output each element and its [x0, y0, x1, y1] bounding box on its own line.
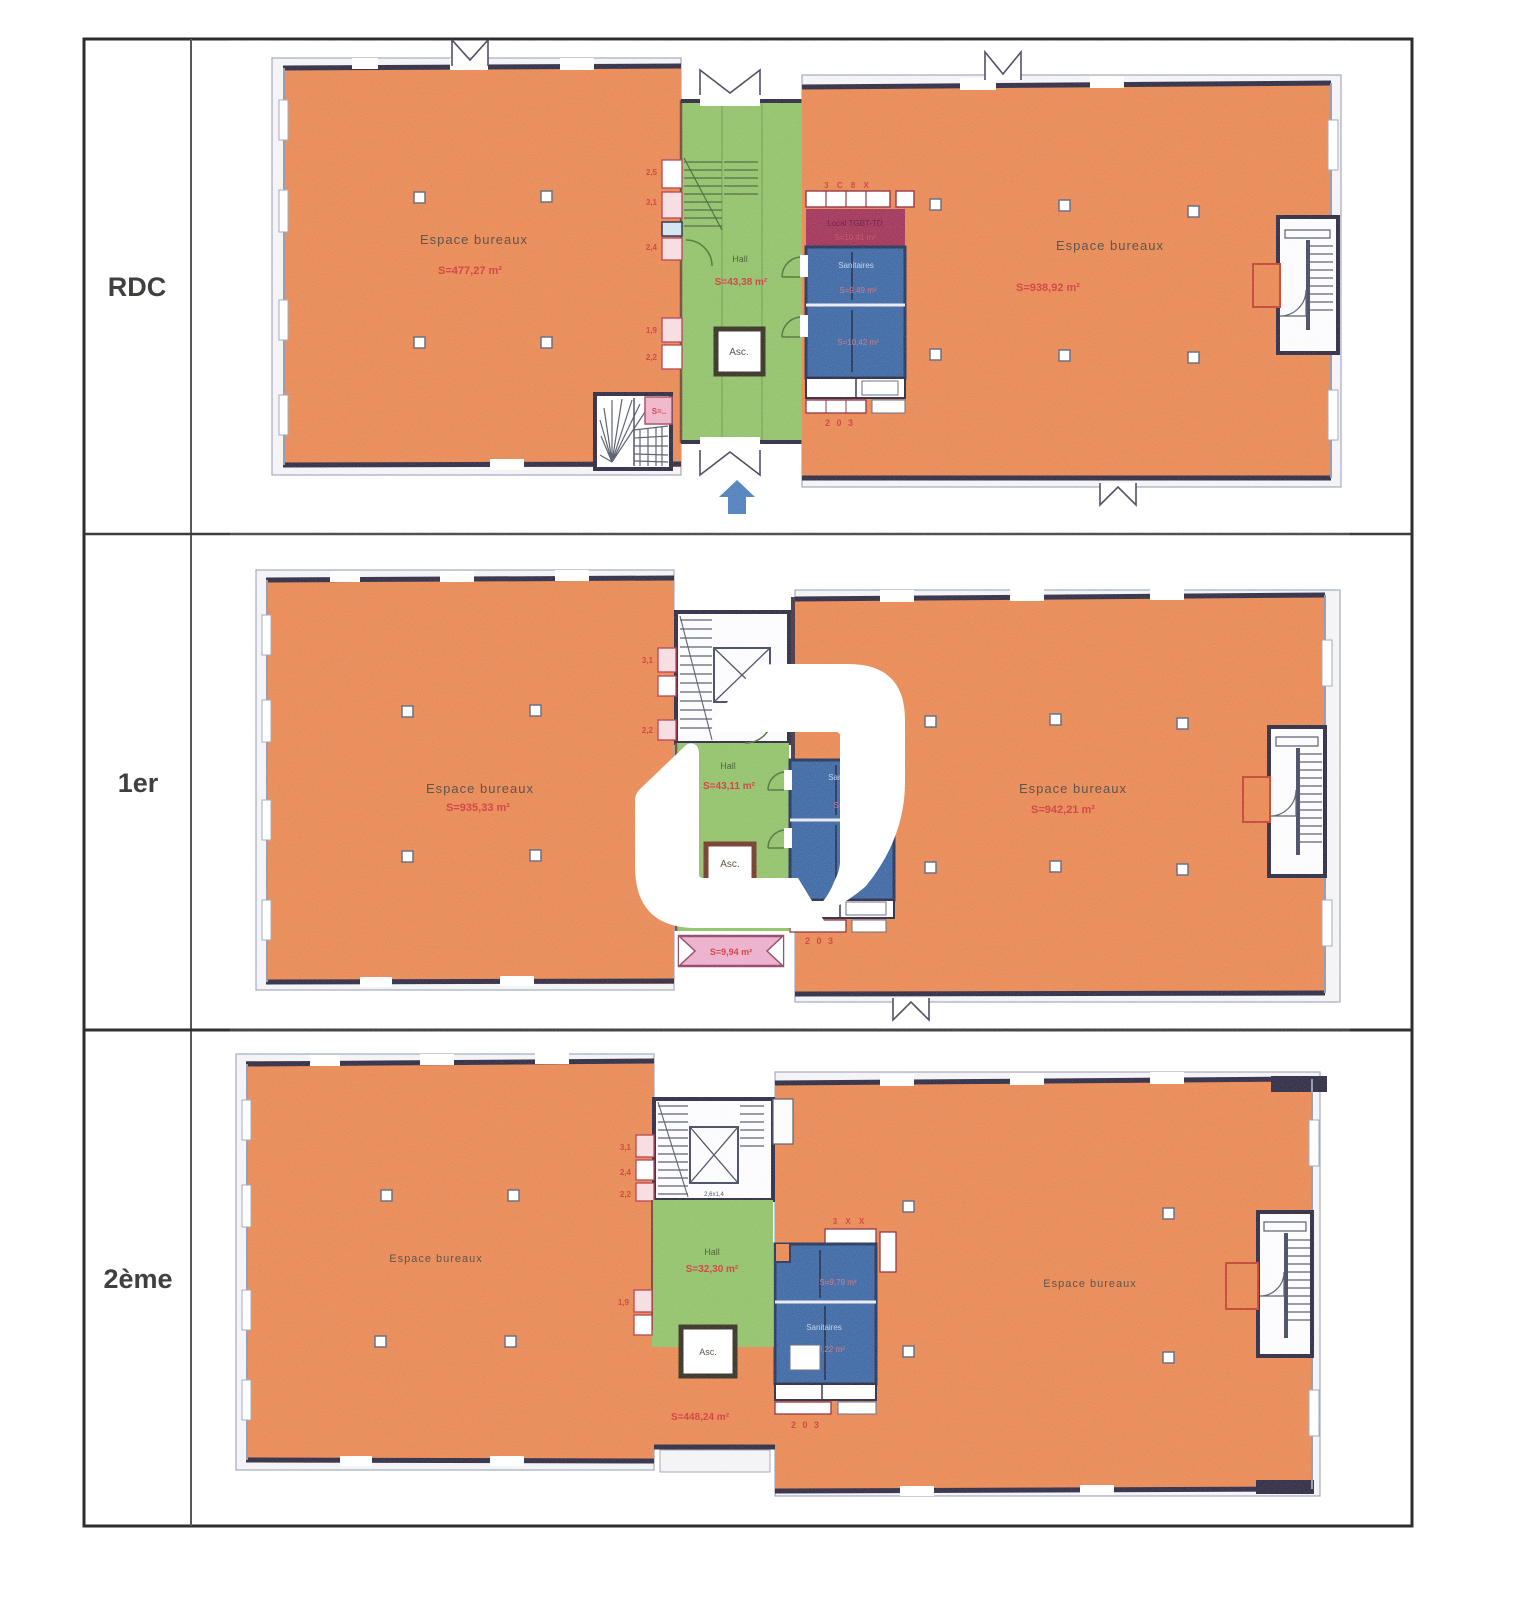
svg-text:Espace bureaux: Espace bureaux [1056, 238, 1164, 253]
svg-text:S=9,79 m²: S=9,79 m² [819, 1278, 856, 1287]
svg-text:S=935,33 m²: S=935,33 m² [446, 802, 510, 814]
svg-text:2,6x1,4: 2,6x1,4 [704, 1192, 724, 1198]
svg-text:Sanitaires: Sanitaires [806, 1323, 842, 1332]
svg-text:Espace bureaux: Espace bureaux [426, 781, 534, 796]
svg-text:Espace bureaux: Espace bureaux [1019, 781, 1127, 796]
svg-text:S=942,21 m²: S=942,21 m² [1031, 804, 1095, 816]
svg-text:S=..: S=.. [652, 407, 666, 416]
svg-text:Espace bureaux: Espace bureaux [1043, 1278, 1137, 1290]
svg-text:S=32,30 m²: S=32,30 m² [686, 1264, 739, 1275]
svg-text:2,4: 2,4 [646, 243, 658, 252]
svg-text:S=10,41 m²: S=10,41 m² [834, 233, 876, 242]
svg-text:S=10,42 m²: S=10,42 m² [837, 338, 879, 347]
svg-text:2ème: 2ème [103, 1264, 172, 1294]
svg-text:1,9: 1,9 [646, 326, 658, 335]
svg-text:3,1: 3,1 [646, 198, 658, 207]
svg-text:S=448,24 m²: S=448,24 m² [671, 1412, 730, 1423]
svg-text:2,2: 2,2 [646, 353, 658, 362]
svg-text:Asc.: Asc. [720, 859, 739, 870]
svg-text:1er: 1er [118, 768, 159, 798]
svg-text:Asc.: Asc. [699, 1347, 717, 1357]
svg-text:S=43,38 m²: S=43,38 m² [715, 277, 768, 288]
svg-text:S=43,11 m²: S=43,11 m² [703, 781, 756, 792]
svg-text:2 0 3: 2 0 3 [805, 936, 835, 946]
svg-text:2,2: 2,2 [642, 726, 654, 735]
svg-text:3 C 8 X: 3 C 8 X [824, 181, 872, 190]
svg-text:S=9,94 m²: S=9,94 m² [710, 947, 752, 957]
svg-text:Sanitaires: Sanitaires [838, 261, 874, 270]
svg-text:Espace bureaux: Espace bureaux [389, 1253, 483, 1265]
svg-text:3,1: 3,1 [642, 656, 654, 665]
svg-text:2,5: 2,5 [646, 168, 658, 177]
svg-text:1,9: 1,9 [618, 1298, 630, 1307]
svg-text:Hall: Hall [720, 761, 736, 771]
svg-text:Asc.: Asc. [729, 347, 748, 358]
svg-text:2,2: 2,2 [620, 1190, 632, 1199]
svg-text:3,1: 3,1 [620, 1143, 632, 1152]
svg-text:S=938,92 m²: S=938,92 m² [1016, 282, 1080, 294]
svg-text:Hall: Hall [732, 254, 748, 264]
svg-text:Local TGBT-TD: Local TGBT-TD [827, 219, 883, 228]
svg-text:2 0 3: 2 0 3 [825, 418, 855, 428]
svg-text:S=477,27 m²: S=477,27 m² [438, 265, 502, 277]
svg-text:2,4: 2,4 [620, 1168, 632, 1177]
svg-text:3 X X: 3 X X [833, 1217, 868, 1226]
svg-text:S=9,49 m²: S=9,49 m² [839, 286, 876, 295]
svg-text:Espace bureaux: Espace bureaux [420, 232, 528, 247]
svg-text:RDC: RDC [108, 272, 167, 302]
svg-text:Hall: Hall [704, 1247, 720, 1257]
svg-text:2 0 3: 2 0 3 [791, 1420, 821, 1430]
